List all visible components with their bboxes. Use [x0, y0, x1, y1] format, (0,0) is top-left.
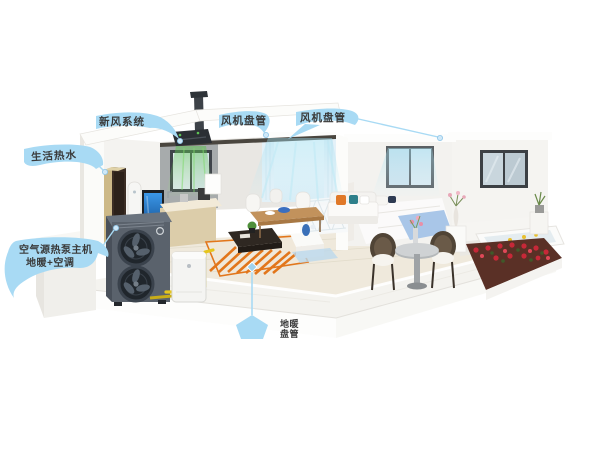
buffer-tank — [172, 252, 206, 302]
callout-floor-heating-label-line2: 盘管 — [280, 328, 299, 339]
callout-fan-coil-bedroom-label: 风机盘管 — [300, 111, 346, 124]
callout-heat-pump-label-line1: 空气源热泵主机 — [19, 243, 93, 256]
callout-fresh-air-label: 新风系统 — [99, 115, 145, 128]
scene-canvas: 新风系统 风机盘管 风机盘管 生活热水 空气源热泵主机 — [0, 0, 600, 450]
sofa — [328, 192, 378, 224]
callout-fan-coil-living-label: 风机盘管 — [221, 114, 267, 127]
house-cutaway-illustration: 新风系统 风机盘管 风机盘管 生活热水 空气源热泵主机 — [0, 0, 600, 450]
right-room-window — [480, 150, 528, 188]
callout-hot-water-label: 生活热水 — [31, 148, 78, 163]
callout-floor-heating-label-line1: 地暖 — [280, 318, 300, 329]
callout-heat-pump-label-line2: 地暖+空调 — [26, 256, 74, 269]
